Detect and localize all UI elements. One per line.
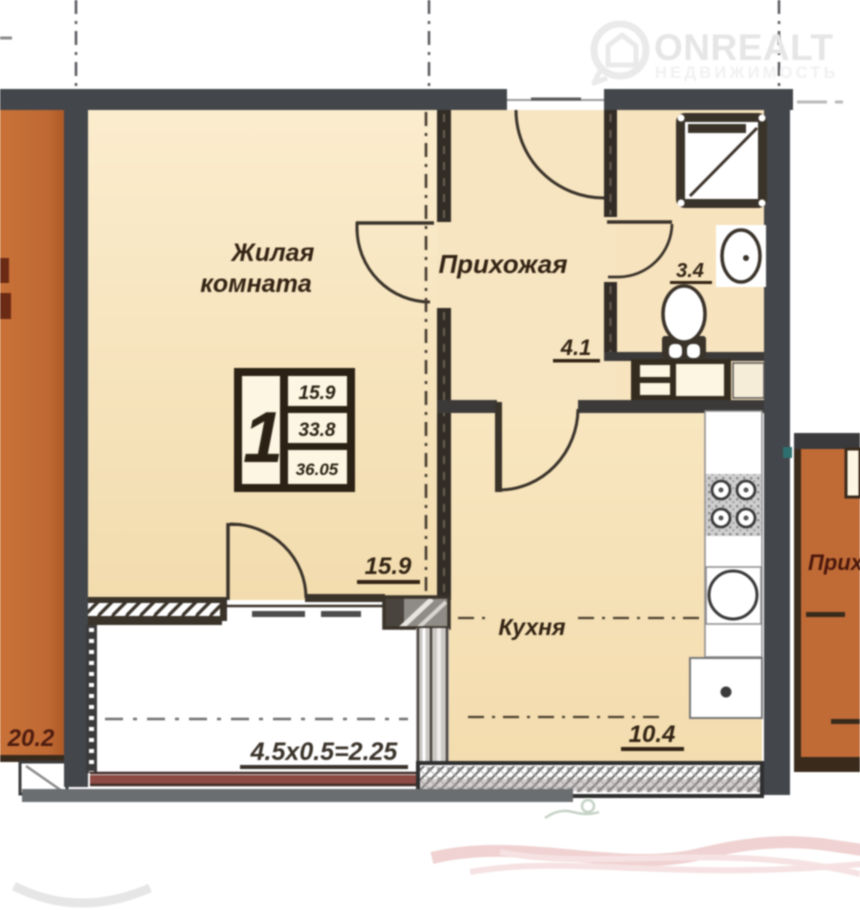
svg-text:15.9: 15.9 xyxy=(365,553,412,580)
svg-text:Жилая: Жилая xyxy=(230,239,315,267)
svg-text:Прихо: Прихо xyxy=(808,550,860,575)
svg-text:3.4: 3.4 xyxy=(676,260,704,282)
svg-text:Кухня: Кухня xyxy=(498,614,566,640)
svg-text:1: 1 xyxy=(243,398,283,478)
svg-text:НЕДВИЖИМОСТЬ: НЕДВИЖИМОСТЬ xyxy=(655,64,839,82)
svg-text:20.2: 20.2 xyxy=(7,725,55,752)
svg-text:33.8: 33.8 xyxy=(299,420,336,441)
svg-text:10.4: 10.4 xyxy=(629,721,676,748)
svg-text:4.5x0.5=2.25: 4.5x0.5=2.25 xyxy=(250,738,399,766)
svg-text:4.1: 4.1 xyxy=(560,335,592,360)
svg-text:15.9: 15.9 xyxy=(299,383,336,404)
svg-text:Прихожая: Прихожая xyxy=(438,249,567,279)
svg-text:ONREALT: ONREALT xyxy=(654,27,834,68)
svg-text:36.05: 36.05 xyxy=(296,460,339,479)
svg-text:комната: комната xyxy=(200,270,312,298)
